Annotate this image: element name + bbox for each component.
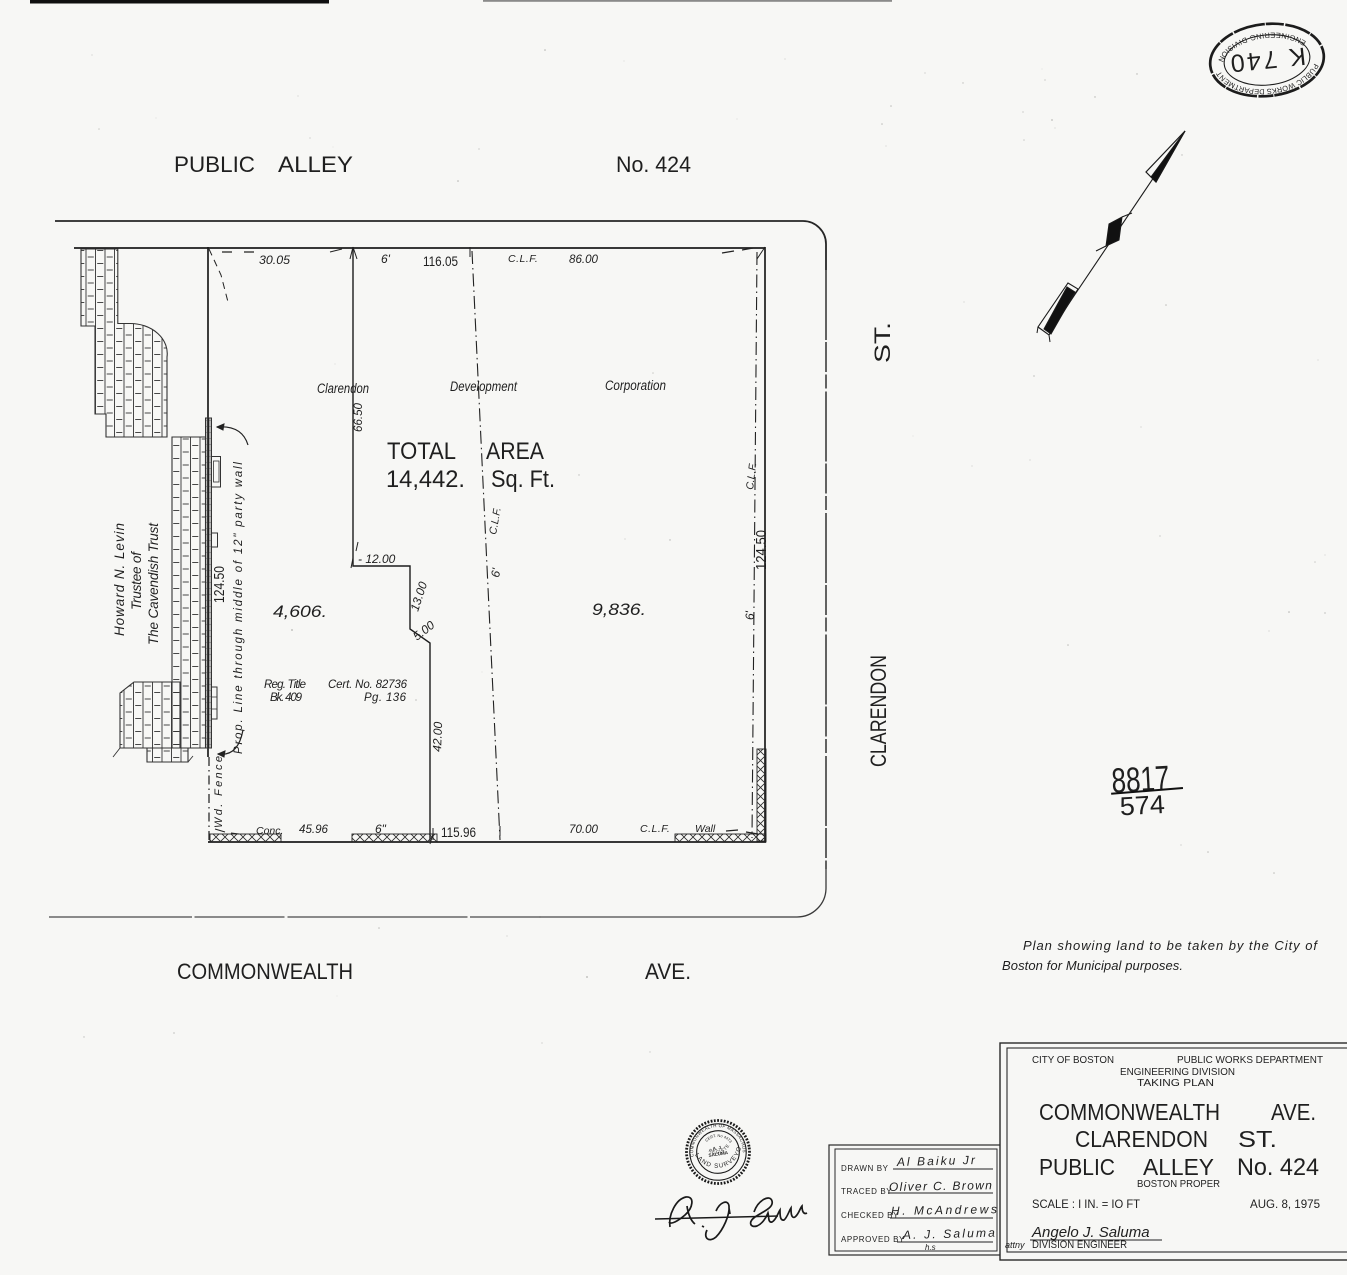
svg-text:ALLEY: ALLEY (1143, 1154, 1214, 1180)
svg-text:Cert. No. 82736: Cert. No. 82736 (328, 679, 408, 691)
svg-text:BOSTON PROPER: BOSTON PROPER (1137, 1178, 1220, 1190)
svg-text:PUBLIC: PUBLIC (1039, 1154, 1115, 1180)
svg-text:Development: Development (450, 379, 518, 394)
svg-text:Howard N. Levin: Howard N. Levin (112, 523, 127, 636)
svg-text:h.s: h.s (925, 1243, 936, 1252)
svg-text:PUBLIC WORKS DEPARTMENT: PUBLIC WORKS DEPARTMENT (1177, 1054, 1324, 1066)
svg-text:No. 424: No. 424 (616, 152, 691, 177)
svg-text:574: 574 (1119, 789, 1166, 821)
svg-text:CLARENDON: CLARENDON (866, 655, 891, 767)
svg-text:A. J. Saluma: A. J. Saluma (902, 1226, 996, 1242)
svg-text:DIVISION ENGINEER: DIVISION ENGINEER (1032, 1239, 1127, 1251)
svg-text:6': 6' (743, 610, 757, 620)
svg-text:13.00: 13.00 (408, 580, 431, 613)
svg-text:TAKING PLAN: TAKING PLAN (1137, 1077, 1214, 1089)
svg-text:ST.: ST. (870, 322, 895, 363)
svg-text:DRAWN BY: DRAWN BY (841, 1164, 889, 1173)
svg-text:PUBLIC: PUBLIC (174, 152, 255, 177)
svg-text:AUG. 8, 1975: AUG. 8, 1975 (1250, 1199, 1320, 1211)
svg-text:66.50: 66.50 (351, 403, 365, 432)
svg-text:124.50: 124.50 (211, 566, 228, 603)
svg-text:CLARENDON: CLARENDON (1075, 1126, 1208, 1152)
svg-text:TRACED BY: TRACED BY (841, 1187, 892, 1196)
svg-text:AREA: AREA (486, 438, 544, 465)
svg-text:C.L.F.: C.L.F. (487, 507, 504, 536)
svg-text:115.96: 115.96 (441, 825, 476, 840)
svg-text:86.00: 86.00 (569, 252, 598, 266)
svg-text:The Cavendish Trust: The Cavendish Trust (146, 522, 161, 645)
svg-text:14,442.: 14,442. (386, 466, 465, 493)
svg-text:Trustee of: Trustee of (129, 551, 144, 610)
svg-text:attny: attny (1005, 1240, 1025, 1250)
svg-text:COMMONWEALTH: COMMONWEALTH (1039, 1099, 1220, 1125)
svg-text:70.00: 70.00 (569, 822, 598, 836)
svg-text:- 12.00: - 12.00 (358, 552, 396, 566)
svg-text:30.05: 30.05 (259, 253, 290, 267)
svg-text:Reg. Title: Reg. Title (264, 679, 306, 691)
svg-text:Boston for Municipal purpos: Boston for Municipal purposes. (1002, 958, 1183, 973)
svg-text:6': 6' (381, 252, 391, 266)
svg-text:SCALE : I IN. = IO FT: SCALE : I IN. = IO FT (1032, 1199, 1140, 1211)
svg-text:ST.: ST. (1238, 1126, 1277, 1152)
svg-text:6": 6" (375, 822, 387, 836)
svg-text:Clarendon: Clarendon (317, 381, 369, 396)
svg-text:Pg. 136: Pg. 136 (364, 692, 407, 704)
svg-text:116.05: 116.05 (423, 254, 458, 269)
svg-text:Corporation: Corporation (605, 378, 666, 393)
svg-text:CITY OF BOSTON: CITY OF BOSTON (1032, 1054, 1114, 1066)
svg-text:TOTAL: TOTAL (387, 438, 456, 465)
svg-text:Prop. Line through middle: Prop. Line through middle of 12" party w… (233, 462, 245, 754)
svg-text:Conc.: Conc. (256, 825, 283, 837)
svg-text:Bk. 409: Bk. 409 (270, 692, 303, 704)
svg-text:9,836.: 9,836. (592, 600, 646, 619)
svg-text:No. 424: No. 424 (1237, 1154, 1319, 1181)
svg-text:45.96: 45.96 (299, 822, 328, 836)
svg-text:42.00: 42.00 (430, 721, 445, 752)
svg-text:AVE.: AVE. (1271, 1099, 1316, 1125)
svg-text:Wd. Fence: Wd. Fence (213, 756, 225, 828)
svg-text:C.L.F.: C.L.F. (640, 823, 670, 835)
svg-text:6': 6' (488, 567, 503, 579)
svg-text:Wall: Wall (695, 823, 716, 835)
svg-text:C.L.F.: C.L.F. (508, 253, 538, 265)
svg-text:APPROVED BY: APPROVED BY (841, 1235, 905, 1244)
svg-text:ALLEY: ALLEY (278, 152, 353, 177)
svg-text:COMMONWEALTH: COMMONWEALTH (177, 959, 353, 984)
svg-text:Plan showing land to be t: Plan showing land to be taken by the Cit… (1023, 938, 1318, 953)
svg-text:Oliver C. Brown: Oliver C. Brown (889, 1178, 993, 1194)
svg-text:Al Baiku Jr: Al Baiku Jr (896, 1153, 976, 1169)
svg-text:Sq. Ft.: Sq. Ft. (491, 466, 555, 493)
svg-text:4,606.: 4,606. (273, 602, 327, 621)
svg-text:C.L.F.: C.L.F. (744, 462, 759, 490)
svg-text:AVE.: AVE. (645, 959, 691, 984)
svg-text:124.50: 124.50 (753, 530, 770, 570)
